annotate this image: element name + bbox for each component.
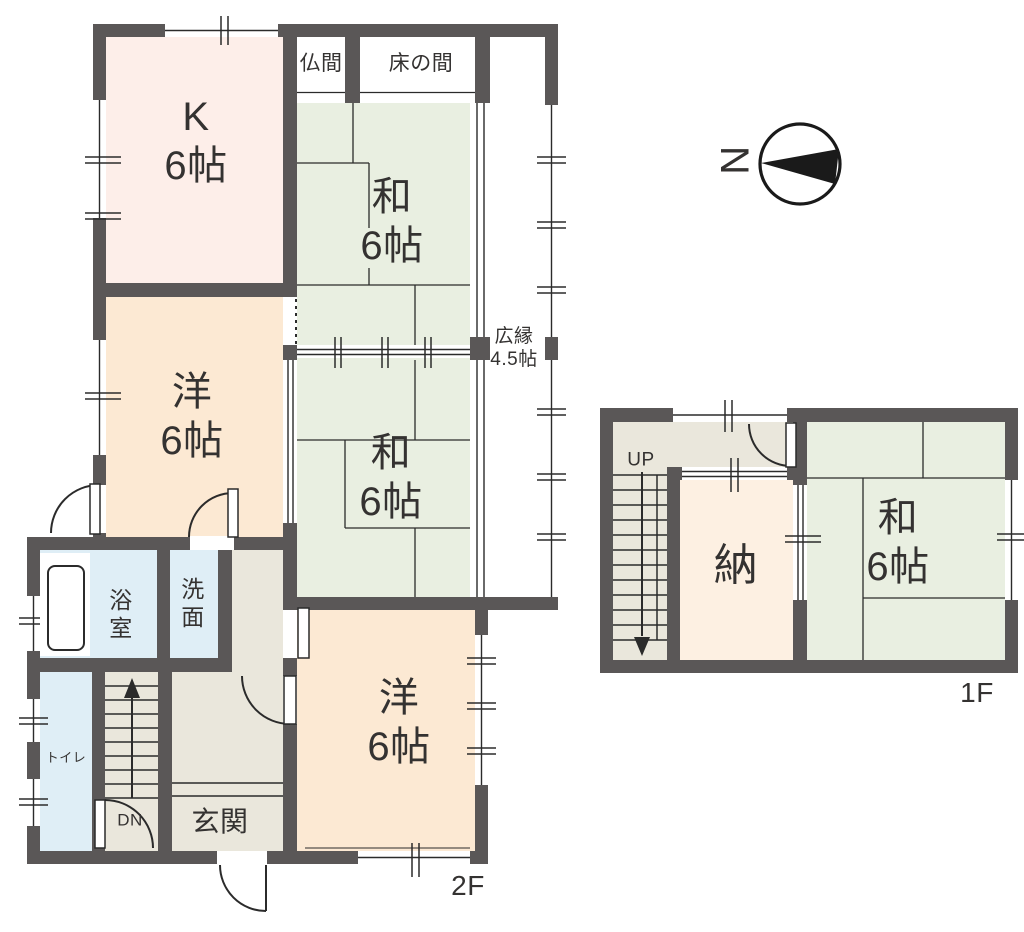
label-toilet: トイレ [46, 750, 87, 766]
label-dn: DN [117, 811, 143, 832]
label-youshitsu-middle: 洋 6帖 [160, 368, 223, 466]
label-layer: K 6帖和 6帖洋 6帖和 6帖洋 6帖広縁 4.5帖仏間床の間浴 室洗 面トイ… [0, 0, 1024, 932]
label-nando: 納 [714, 539, 759, 593]
label-washitsu-lower: 和 6帖 [359, 429, 422, 527]
label-floor-2f: 2F [451, 869, 485, 903]
label-butsuma: 仏間 [300, 51, 343, 77]
label-tokonoma: 床の間 [389, 51, 454, 77]
label-genkan: 玄関 [191, 805, 248, 839]
floor-plan-page: K 6帖和 6帖洋 6帖和 6帖洋 6帖広縁 4.5帖仏間床の間浴 室洗 面トイ… [0, 0, 1024, 932]
label-youshitsu-lower: 洋 6帖 [367, 674, 430, 772]
label-compass-n: N [712, 145, 761, 174]
label-bath: 浴 室 [109, 586, 133, 642]
label-kitchen: K 6帖 [164, 93, 227, 191]
label-washitsu-1f: 和 6帖 [866, 494, 929, 592]
label-hiroen: 広縁 4.5帖 [490, 325, 537, 371]
label-senmen: 洗 面 [181, 575, 205, 631]
label-washitsu-upper: 和 6帖 [360, 173, 423, 271]
label-floor-1f: 1F [960, 676, 994, 710]
label-up: UP [627, 448, 654, 471]
